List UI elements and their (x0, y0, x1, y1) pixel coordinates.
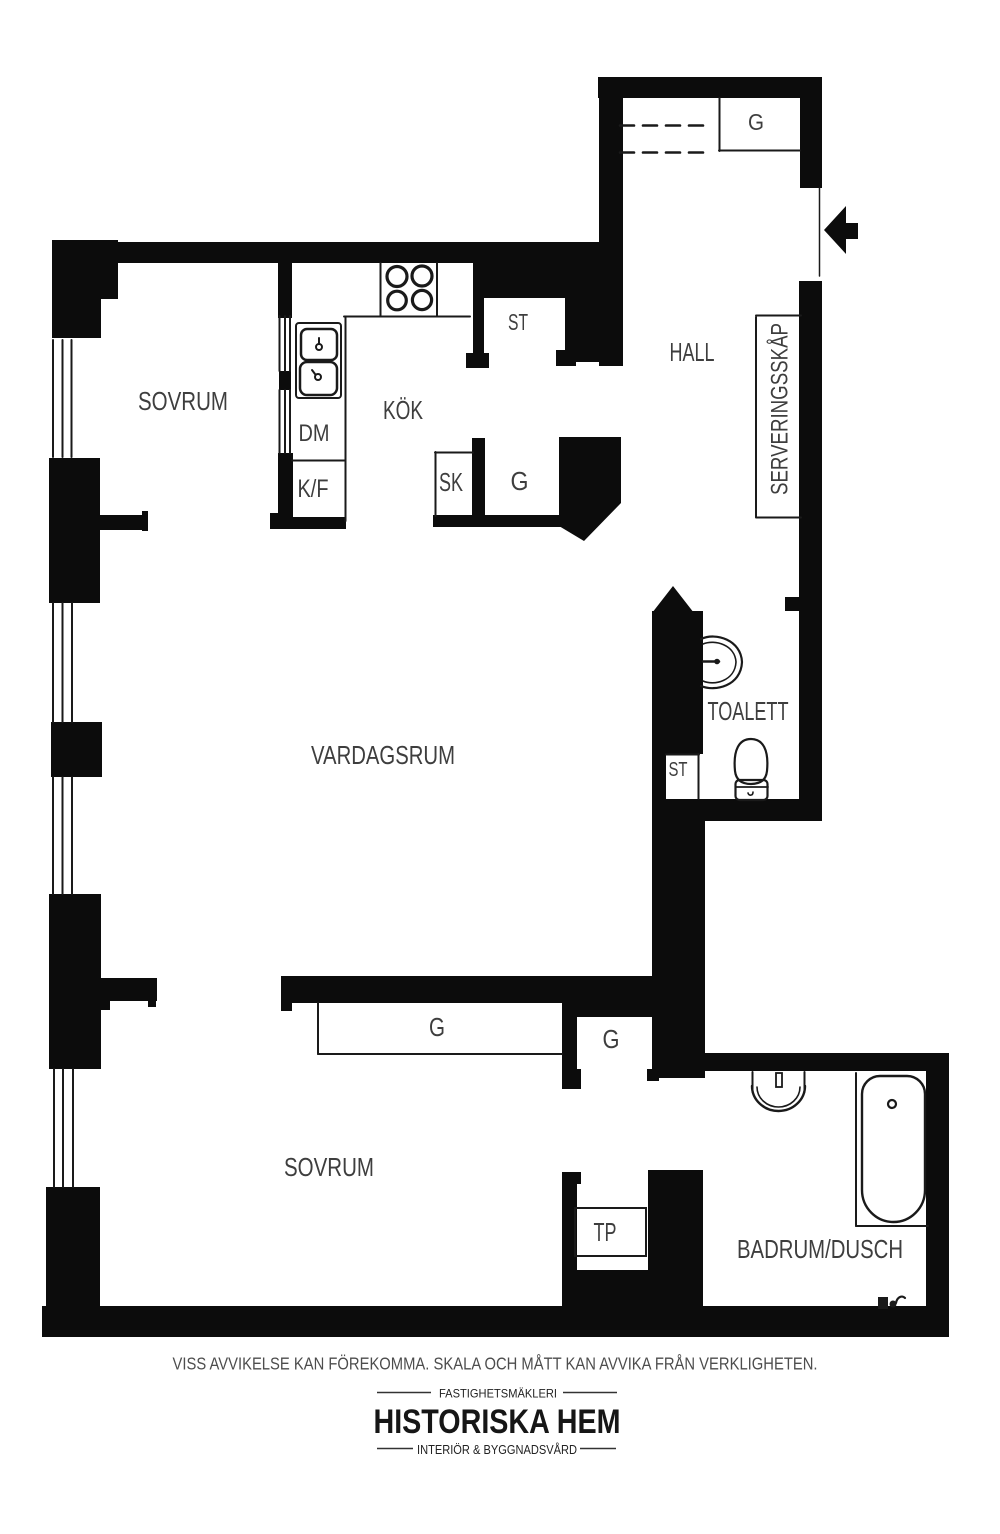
svg-text:VARDAGSRUM: VARDAGSRUM (311, 740, 455, 770)
svg-text:SERVERINGSSKÅP: SERVERINGSSKÅP (766, 323, 794, 495)
svg-text:TP: TP (594, 1217, 617, 1247)
svg-text:DM: DM (299, 420, 330, 447)
svg-text:VISS AVVIKELSE KAN FÖREKOMMA.: VISS AVVIKELSE KAN FÖREKOMMA. SKALA OCH … (173, 1354, 818, 1374)
svg-text:ST: ST (508, 309, 528, 335)
svg-text:G: G (511, 466, 529, 496)
svg-text:SOVRUM: SOVRUM (284, 1152, 374, 1182)
svg-text:INTERIÖR & BYGGNADSVÅRD: INTERIÖR & BYGGNADSVÅRD (417, 1442, 577, 1457)
svg-text:SOVRUM: SOVRUM (138, 386, 228, 416)
svg-text:G: G (748, 109, 764, 135)
svg-text:BADRUM/DUSCH: BADRUM/DUSCH (737, 1234, 903, 1264)
svg-text:ST: ST (669, 759, 688, 781)
svg-text:G: G (429, 1012, 445, 1042)
svg-text:K/F: K/F (298, 475, 329, 503)
svg-text:HISTORISKA HEM: HISTORISKA HEM (374, 1403, 621, 1441)
svg-text:FASTIGHETSMÄKLERI: FASTIGHETSMÄKLERI (439, 1387, 557, 1401)
svg-text:KÖK: KÖK (383, 395, 423, 425)
svg-text:HALL: HALL (670, 337, 715, 367)
svg-text:SK: SK (439, 467, 463, 497)
svg-text:TOALETT: TOALETT (708, 696, 789, 726)
svg-text:G: G (603, 1024, 620, 1054)
